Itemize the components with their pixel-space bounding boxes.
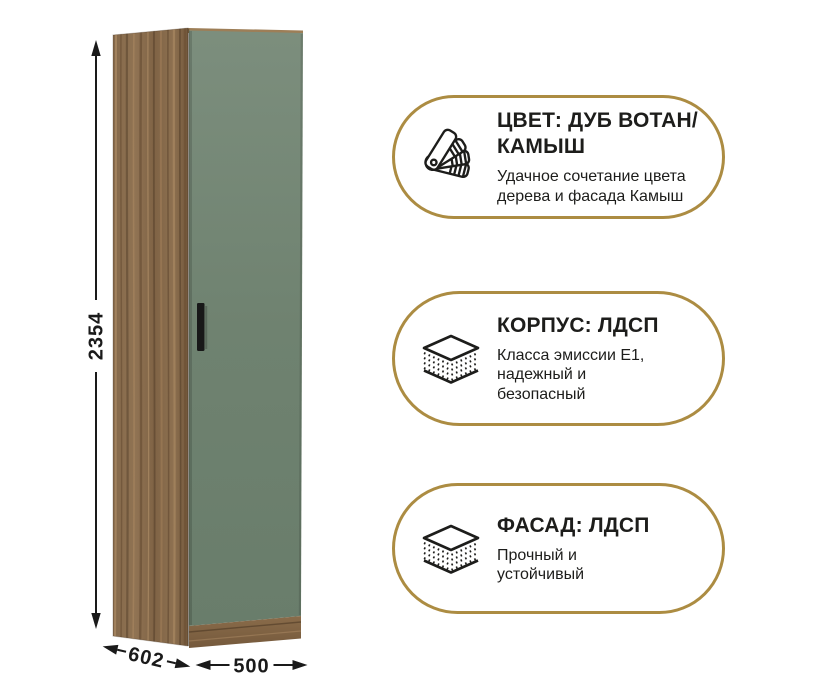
layers-icon <box>422 524 480 574</box>
wardrobe-side-panel <box>113 28 188 648</box>
feature-badge-facade: ФАСАД: ЛДСП Прочный и устойчивый <box>392 483 725 614</box>
feature-badge-color: ЦВЕТ: ДУБ ВОТАН/КАМЫШ Удачное сочетание … <box>392 95 725 219</box>
feature-badge-body: КОРПУС: ЛДСП Класса эмиссии E1, надежный… <box>392 291 725 426</box>
badge-title: ФАСАД: ЛДСП <box>497 513 650 539</box>
dimension-depth-label: 602 <box>126 643 166 673</box>
wardrobe-illustration: 2354 602 500 <box>0 0 370 700</box>
dimension-width-label: 500 <box>233 656 269 678</box>
dimension-height-label: 2354 <box>86 312 108 361</box>
badge-title: КОРПУС: ЛДСП <box>497 313 669 339</box>
badge-subtitle: Прочный и устойчивый <box>497 546 619 585</box>
badge-subtitle: Удачное сочетание цвета дерева и фасада … <box>497 167 708 206</box>
dimension-width: 500 <box>196 656 308 678</box>
layers-icon <box>422 334 480 384</box>
color-swatches-icon <box>422 124 480 190</box>
product-infographic: 2354 602 500 <box>0 0 816 700</box>
badge-title: ЦВЕТ: ДУБ ВОТАН/КАМЫШ <box>497 108 708 160</box>
badge-subtitle: Класса эмиссии E1, надежный и безопасный <box>497 346 669 405</box>
